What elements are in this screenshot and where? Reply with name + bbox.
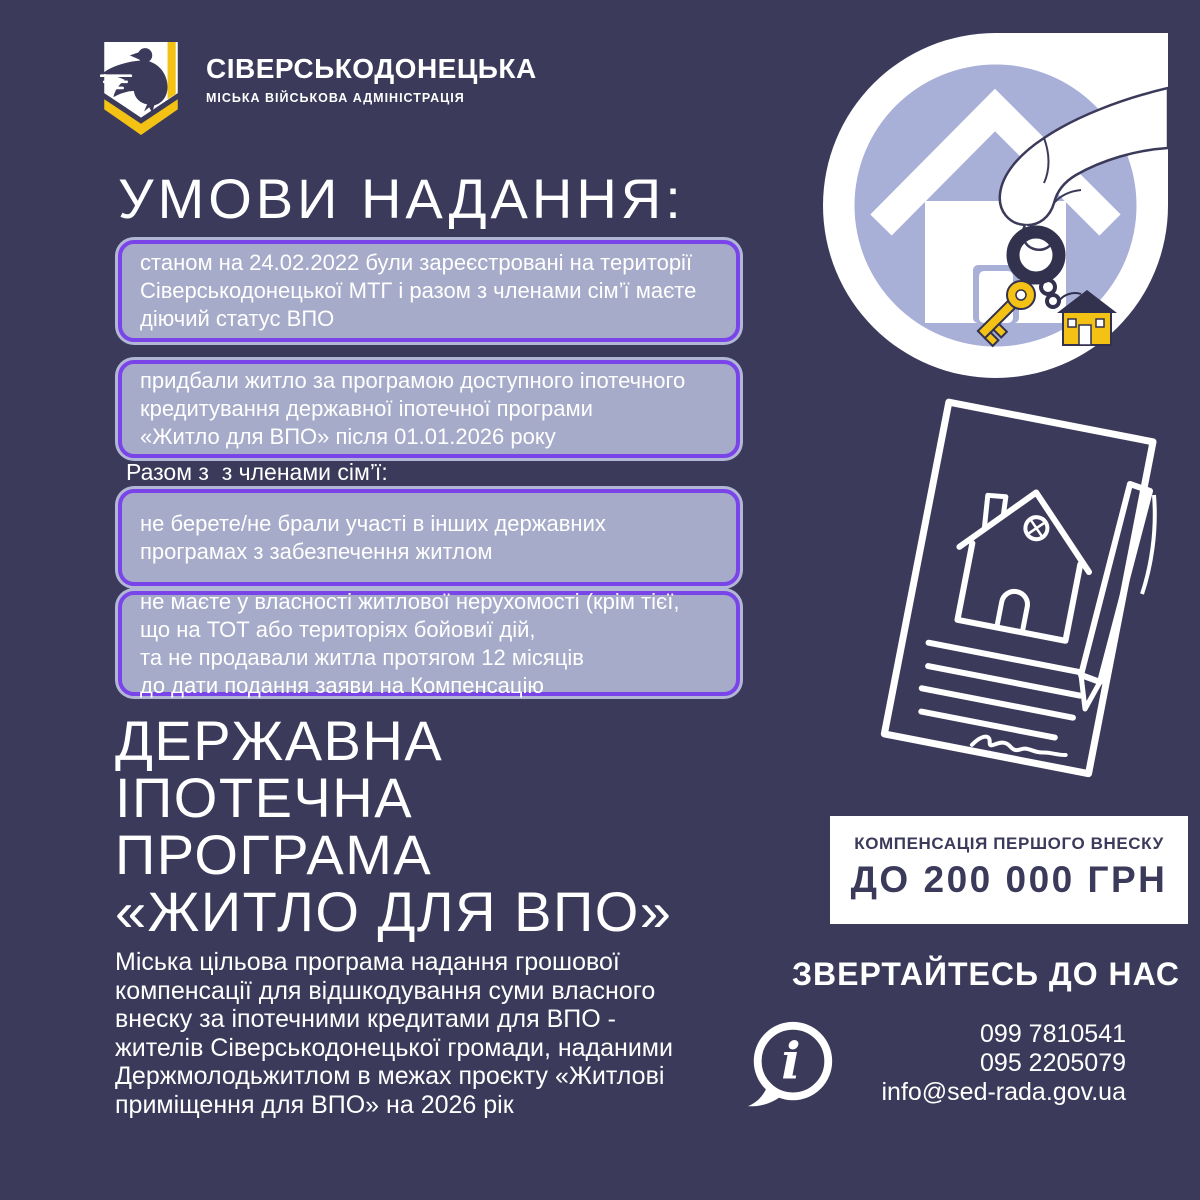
poster-background: СІВЕРСЬКОДОНЕЦЬКА МІСЬКА ВІЙСЬКОВА АДМІН…: [0, 0, 1200, 1200]
condition-text-4: не маєте у власності житлової нерухомост…: [140, 588, 679, 700]
shield-pigeon-icon: [100, 40, 182, 138]
org-subtitle: МІСЬКА ВІЙСЬКОВА АДМІНІСТРАЦІЯ: [206, 91, 537, 105]
pen-icon: [1081, 484, 1155, 709]
contact-phone-1: 099 7810541: [881, 1020, 1126, 1049]
compensation-card: КОМПЕНСАЦІЯ ПЕРШОГО ВНЕСКУ ДО 200 000 ГР…: [830, 816, 1188, 924]
condition-box-1: станом на 24.02.2022 були зареєстровані …: [118, 240, 740, 342]
contact-title: ЗВЕРТАЙТЕСЬ ДО НАС: [792, 956, 1180, 993]
info-icon: i: [742, 1016, 840, 1114]
contact-email: info@sed-rada.gov.ua: [881, 1078, 1126, 1107]
contact-phone-2: 095 2205079: [881, 1049, 1126, 1078]
program-title-line-2: ІПОТЕЧНА: [115, 769, 672, 826]
compensation-amount: ДО 200 000 ГРН: [830, 859, 1188, 901]
contact-details: 099 7810541 095 2205079 info@sed-rada.go…: [881, 1020, 1126, 1107]
condition-text-3: не берете/не брали участі в інших держав…: [140, 510, 606, 566]
conditions-title: УМОВИ НАДАННЯ:: [118, 166, 685, 231]
org-logo: СІВЕРСЬКОДОНЕЦЬКА МІСЬКА ВІЙСЬКОВА АДМІН…: [100, 40, 570, 140]
org-name: СІВЕРСЬКОДОНЕЦЬКА: [206, 54, 537, 85]
program-title-line-1: ДЕРЖАВНА: [115, 712, 672, 769]
condition-text-2: придбали житло за програмою доступного і…: [140, 367, 685, 451]
compensation-label: КОМПЕНСАЦІЯ ПЕРШОГО ВНЕСКУ: [830, 834, 1188, 854]
condition-box-4: не маєте у власності житлової нерухомост…: [118, 591, 740, 696]
program-title-line-3: ПРОГРАМА: [115, 826, 672, 883]
contract-pen-illustration: [852, 392, 1197, 792]
contract-sheet-icon: [884, 402, 1153, 773]
condition-text-1: станом на 24.02.2022 були зареєстровані …: [140, 249, 696, 333]
program-description: Міська цільова програма надання грошової…: [115, 948, 755, 1119]
condition-box-2: придбали житло за програмою доступного і…: [118, 360, 740, 458]
house-keys-illustration: [823, 33, 1168, 378]
family-note: Разом з з членами сім’ї:: [126, 459, 388, 486]
program-title-line-4: «ЖИТЛО ДЛЯ ВПО»: [115, 883, 672, 940]
svg-text:i: i: [781, 1032, 800, 1092]
org-title-block: СІВЕРСЬКОДОНЕЦЬКА МІСЬКА ВІЙСЬКОВА АДМІН…: [206, 40, 537, 105]
condition-box-3: не берете/не брали участі в інших держав…: [118, 489, 740, 586]
program-title: ДЕРЖАВНА ІПОТЕЧНА ПРОГРАМА «ЖИТЛО ДЛЯ ВП…: [115, 712, 672, 940]
